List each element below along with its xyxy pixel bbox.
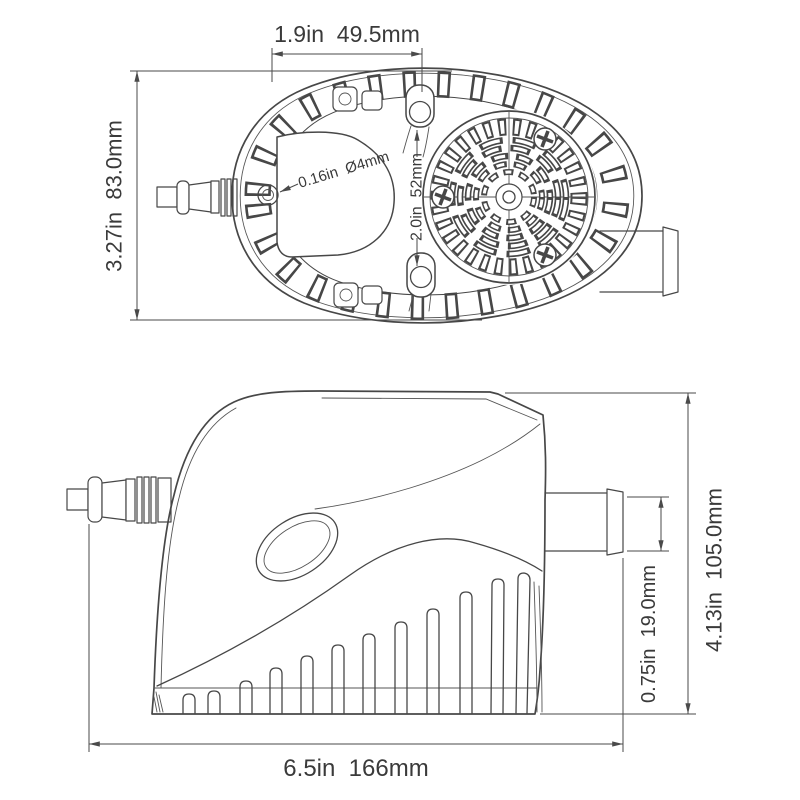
oval-recess bbox=[244, 499, 350, 595]
boss bbox=[362, 286, 382, 304]
extension-line bbox=[272, 48, 422, 92]
fin-slot bbox=[395, 622, 407, 713]
fin-slash bbox=[534, 582, 537, 712]
fitting-rib bbox=[137, 477, 142, 523]
fitting-step bbox=[126, 479, 135, 521]
fin-slot bbox=[301, 656, 313, 713]
side-view bbox=[67, 391, 623, 714]
fitting-stub bbox=[67, 489, 88, 510]
fin-slot bbox=[240, 681, 252, 713]
fin-slot bbox=[491, 579, 504, 713]
fitting-rib bbox=[227, 179, 231, 216]
boss bbox=[334, 283, 358, 307]
fin-slot bbox=[363, 634, 375, 713]
fitting-flange bbox=[88, 477, 102, 522]
fin-slot bbox=[516, 573, 530, 713]
port-barb bbox=[607, 489, 623, 555]
strainer-grate bbox=[421, 109, 597, 285]
fitting-barrel bbox=[189, 182, 211, 212]
fitting-flange bbox=[177, 181, 189, 214]
dim-overall-length: 6.5in 166mm bbox=[89, 524, 623, 782]
dim-mount-span: 2.0in 52mm bbox=[409, 130, 426, 266]
body-left-inner-line bbox=[161, 408, 236, 688]
top-view-outlet-port bbox=[600, 227, 678, 296]
side-view-outlet-port bbox=[545, 489, 623, 555]
oval-recess-inner bbox=[255, 510, 339, 584]
fitting-stub bbox=[157, 187, 177, 207]
mount-stem bbox=[403, 126, 429, 157]
dim-overall-height-label: 4.13in 105.0mm bbox=[702, 488, 727, 652]
fitting-rib bbox=[221, 179, 225, 216]
fitting-step bbox=[211, 181, 219, 213]
fin-slots bbox=[154, 573, 542, 713]
mounting-arm-top bbox=[403, 85, 434, 157]
fitting-rib bbox=[144, 477, 149, 523]
fitting-rib bbox=[151, 477, 156, 523]
fin-slot bbox=[332, 645, 344, 713]
screw-icon bbox=[534, 244, 556, 266]
dim-outlet-diameter-label: 0.75in 19.0mm bbox=[638, 565, 660, 703]
extension-line bbox=[505, 393, 696, 714]
foot-hatch bbox=[154, 692, 163, 712]
boss bbox=[333, 87, 357, 111]
mount-capsule bbox=[406, 85, 434, 127]
dim-mount-span-label: 2.0in 52mm bbox=[409, 153, 426, 241]
port-barb bbox=[663, 227, 678, 296]
fin-slot bbox=[427, 609, 439, 713]
fitting-barrel bbox=[102, 480, 126, 520]
body-top-inner-line bbox=[322, 398, 537, 420]
fin-slot bbox=[208, 691, 220, 713]
pump-body-outline bbox=[152, 391, 546, 714]
side-view-cable-fitting bbox=[67, 477, 171, 523]
body-shoulder-contour bbox=[315, 424, 540, 509]
dim-outlet-diameter: 0.75in 19.0mm bbox=[627, 497, 669, 703]
body-swoosh-line bbox=[157, 539, 542, 686]
dim-overall-length-label: 6.5in 166mm bbox=[283, 755, 428, 782]
side-view-dimensions: 6.5in 166mm 4.13in 105.0mm 0.75in 19.0mm bbox=[89, 393, 727, 782]
extension-line bbox=[627, 497, 669, 551]
drawing-svg: 1.9in 49.5mm 3.27in 83.0mm 2.0in 52mm 0.… bbox=[0, 0, 800, 800]
grate-hub-ring bbox=[496, 184, 522, 210]
fin-slot bbox=[183, 694, 195, 713]
dim-left-height-label: 3.27in 83.0mm bbox=[102, 120, 127, 272]
fin-slot bbox=[460, 592, 472, 713]
fin-slot bbox=[270, 668, 282, 713]
port-walls bbox=[545, 493, 607, 551]
dim-top-width-label: 1.9in 49.5mm bbox=[274, 21, 420, 47]
technical-drawing-page: 1.9in 49.5mm 3.27in 83.0mm 2.0in 52mm 0.… bbox=[0, 0, 800, 800]
boss bbox=[362, 91, 382, 110]
oval-recess-outer bbox=[244, 499, 350, 595]
top-view-cable-fitting bbox=[157, 179, 237, 216]
screw-icon bbox=[432, 186, 454, 208]
screw-icon bbox=[534, 128, 556, 150]
